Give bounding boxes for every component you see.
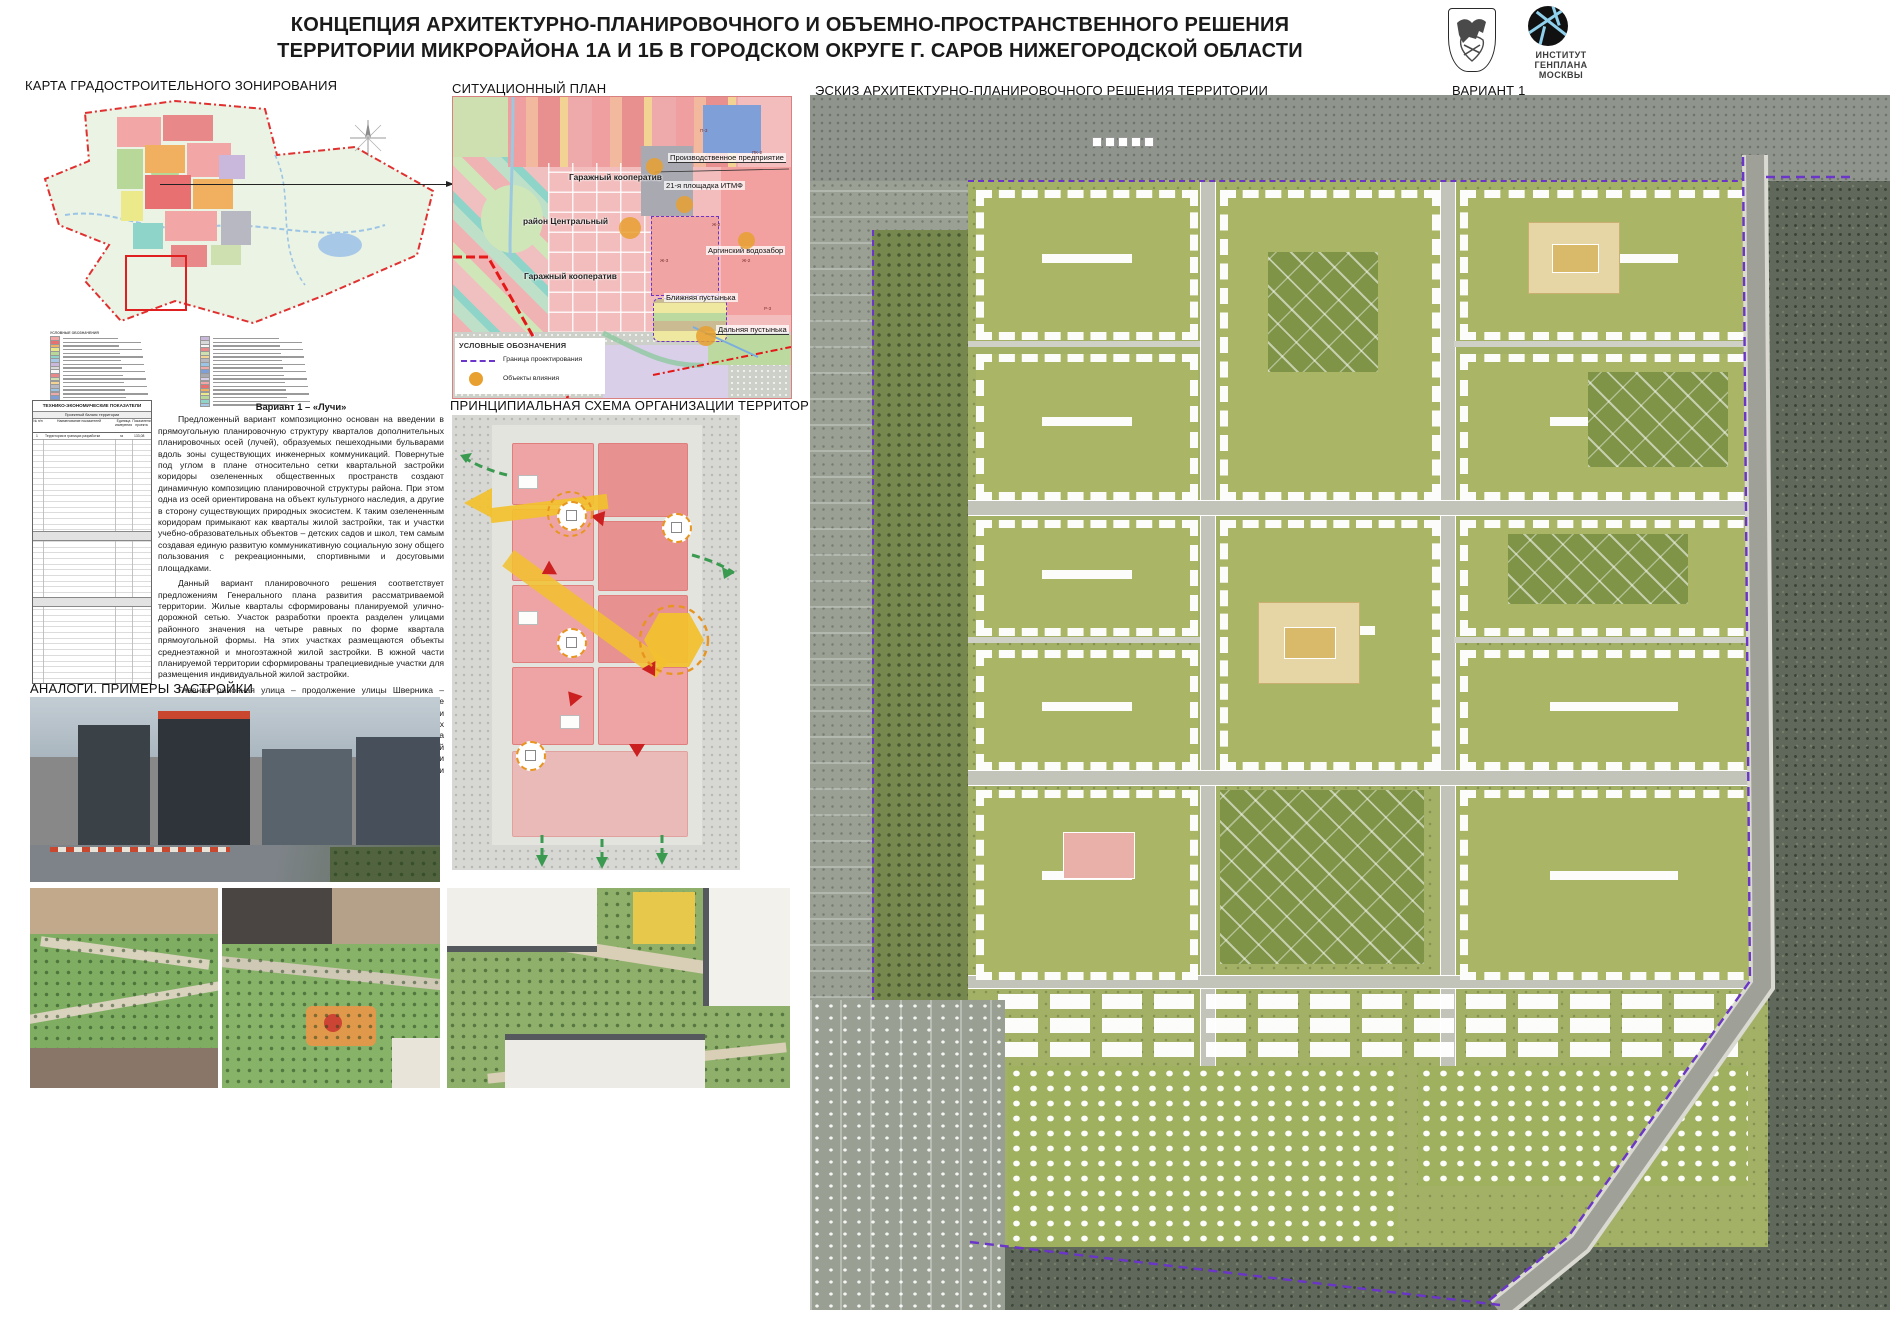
zoning-legend-row bbox=[50, 374, 188, 377]
zoning-legend-row bbox=[200, 389, 338, 392]
photo-tower bbox=[78, 725, 150, 855]
legend-text-bar bbox=[63, 345, 119, 346]
zoning-legend-row bbox=[50, 396, 188, 399]
zoning-legend-row bbox=[200, 348, 338, 351]
zone-code: П-3 bbox=[700, 128, 707, 133]
legend-text-bar bbox=[213, 345, 280, 346]
zoning-legend-row bbox=[50, 385, 188, 388]
tep-table: ТЕХНИКО-ЭКОНОМИЧЕСКИЕ ПОКАЗАТЕЛИ Проектн… bbox=[32, 400, 152, 684]
photo-midrise bbox=[356, 737, 440, 847]
zone-code: Ж-2 bbox=[712, 222, 720, 227]
zoning-legend-row bbox=[50, 378, 188, 381]
label-garage-coop-north: Гаражный кооператив bbox=[569, 172, 662, 182]
legend-text-bar bbox=[213, 338, 279, 339]
zoning-legend-row bbox=[50, 363, 188, 366]
zoning-legend-row bbox=[50, 389, 188, 392]
legend-text-bar bbox=[63, 375, 123, 376]
tep-table-section-band bbox=[33, 597, 151, 607]
photo-midrise bbox=[262, 749, 352, 845]
variant-description-heading: Вариант 1 – «Лучи» bbox=[158, 401, 444, 412]
tep-col-value: Показатели проекта bbox=[132, 420, 151, 428]
zoning-legend-row bbox=[50, 359, 188, 362]
analog-photo-aerial-towers bbox=[30, 697, 440, 882]
legend-text-bar bbox=[63, 397, 126, 398]
photo-building-yellow bbox=[633, 892, 695, 944]
legend-text-bar bbox=[63, 349, 142, 350]
zoning-legend-row bbox=[200, 359, 338, 362]
coat-engraving bbox=[1449, 9, 1495, 71]
variant-paragraph-1: Предложенный вариант композиционно основ… bbox=[158, 414, 444, 574]
photo-building bbox=[30, 888, 218, 934]
legend-text-bar bbox=[63, 378, 146, 379]
zone-code: Р-3 bbox=[764, 306, 771, 311]
analog-photo-courtyard-green bbox=[30, 888, 218, 1088]
legend-text-bar bbox=[213, 397, 287, 398]
legend-text-bar bbox=[63, 360, 121, 361]
zoning-legend-column bbox=[200, 337, 338, 407]
zoning-legend-title: УСЛОВНЫЕ ОБОЗНАЧЕНИЯ bbox=[50, 331, 340, 335]
section-header-schema: ПРИНЦИПИАЛЬНАЯ СХЕМА ОРГАНИЗАЦИИ ТЕРРИТО… bbox=[450, 398, 828, 413]
title-line-1: КОНЦЕПЦИЯ АРХИТЕКТУРНО-ПЛАНИРОВОЧНОГО И … bbox=[120, 12, 1460, 38]
callout-industrial-enterprise: Производственное предприятие bbox=[668, 153, 786, 163]
presentation-board: КОНЦЕПЦИЯ АРХИТЕКТУРНО-ПЛАНИРОВОЧНОГО И … bbox=[0, 0, 1900, 1342]
logo-text-line: МОСКВЫ bbox=[1506, 70, 1616, 80]
zoning-legend-row bbox=[50, 370, 188, 373]
tep-cell-name: Территория в границах разработки bbox=[45, 434, 100, 438]
zoning-legend-row bbox=[200, 367, 338, 370]
callout-far-hermitage: Дальняя пустынька bbox=[716, 325, 789, 335]
map-to-plan-arrow bbox=[160, 184, 452, 185]
zoning-legend-row bbox=[200, 337, 338, 340]
zoning-legend-row bbox=[50, 344, 188, 347]
tep-table-body-rows bbox=[33, 439, 151, 683]
legend-title: УСЛОВНЫЕ ОБОЗНАЧЕНИЯ bbox=[459, 341, 566, 350]
genplan-institute-logo: ИНСТИТУТ ГЕНПЛАНА МОСКВЫ bbox=[1506, 4, 1616, 82]
photo-trees bbox=[330, 847, 440, 882]
legend-text-bar bbox=[63, 371, 145, 372]
legend-text-bar bbox=[213, 353, 281, 354]
photo-building bbox=[392, 1038, 440, 1088]
analog-photo-courtyard-playground bbox=[222, 888, 440, 1088]
zone-code: Ж-3 bbox=[660, 258, 668, 263]
legend-text-bar bbox=[63, 386, 147, 387]
section-header-situation-plan: СИТУАЦИОННЫЙ ПЛАН bbox=[452, 81, 606, 96]
schema-arrows bbox=[452, 415, 740, 870]
tep-cell-num: 1 bbox=[36, 434, 38, 438]
zoning-legend-row bbox=[50, 352, 188, 355]
tep-col-unit: Единица измерения bbox=[115, 420, 132, 428]
zoning-legend-row bbox=[50, 348, 188, 351]
legend-text-bar bbox=[213, 364, 305, 365]
analog-photo-aerial-courtyard bbox=[447, 888, 790, 1088]
logo-text-line: ГЕНПЛАНА bbox=[1506, 60, 1616, 70]
variant-paragraph-2: Данный вариант планировочного решения со… bbox=[158, 578, 444, 681]
influence-object-marker bbox=[619, 217, 641, 239]
legend-text-bar bbox=[213, 393, 309, 394]
tep-table-section-band bbox=[33, 531, 151, 541]
logo-text-line: ИНСТИТУТ bbox=[1506, 50, 1616, 60]
project-area-highlight bbox=[125, 255, 187, 311]
zoning-legend-row bbox=[200, 385, 338, 388]
influence-object-marker bbox=[676, 196, 693, 213]
legend-text-bar bbox=[63, 353, 120, 354]
zoning-legend-row bbox=[200, 381, 338, 384]
zoning-legend-row bbox=[50, 367, 188, 370]
legend-item-influence: Объекты влияния bbox=[503, 375, 559, 382]
photo-red-accent bbox=[158, 711, 250, 719]
photo-building bbox=[332, 888, 440, 944]
genplan-logo-text: ИНСТИТУТ ГЕНПЛАНА МОСКВЫ bbox=[1506, 50, 1616, 80]
photo-building bbox=[30, 1048, 218, 1088]
page-title: КОНЦЕПЦИЯ АРХИТЕКТУРНО-ПЛАНИРОВОЧНОГО И … bbox=[120, 12, 1460, 64]
legend-text-bar bbox=[213, 356, 304, 357]
legend-text-bar bbox=[63, 364, 144, 365]
photo-trees bbox=[30, 934, 218, 1052]
legend-text-bar bbox=[213, 378, 307, 379]
logos-block: ИНСТИТУТ ГЕНПЛАНА МОСКВЫ bbox=[1448, 4, 1618, 82]
influence-object-marker bbox=[696, 326, 716, 346]
influence-circle-icon bbox=[469, 372, 483, 386]
photo-building bbox=[222, 888, 332, 950]
master-plan-sketch bbox=[810, 95, 1890, 1310]
legend-item-boundary: Граница проектирования bbox=[503, 356, 582, 363]
legend-text-bar bbox=[213, 375, 284, 376]
tep-cell-value: 133,08 bbox=[134, 434, 144, 438]
tep-table-header-row: № п/п Наименование показателей Единица и… bbox=[33, 418, 151, 433]
territory-organization-schema bbox=[452, 415, 740, 870]
moscow-coat-of-arms-icon bbox=[1448, 8, 1496, 72]
legend-text-bar bbox=[63, 367, 122, 368]
photo-building bbox=[447, 888, 597, 952]
zone-code: ПК-2 bbox=[752, 150, 762, 155]
tep-col-name: Наименование показателей bbox=[44, 420, 114, 424]
zoning-legend-row bbox=[50, 341, 188, 344]
callout-near-hermitage: Ближняя пустынька bbox=[664, 293, 738, 302]
zoning-legend-row bbox=[200, 374, 338, 377]
zoning-legend-row bbox=[200, 378, 338, 381]
zoning-legend-row bbox=[200, 344, 338, 347]
tep-col-num: № п/п bbox=[33, 420, 43, 424]
legend-text-bar bbox=[63, 382, 124, 383]
zoning-legend-row bbox=[50, 337, 188, 340]
label-garage-coop-south: Гаражный кооператив bbox=[524, 271, 617, 281]
photo-fence bbox=[50, 847, 230, 852]
legend-text-bar bbox=[213, 367, 283, 368]
legend-text-bar bbox=[63, 338, 118, 339]
legend-text-bar bbox=[63, 342, 141, 343]
legend-text-bar bbox=[63, 356, 143, 357]
legend-text-bar bbox=[213, 386, 308, 387]
zoning-map-legend: УСЛОВНЫЕ ОБОЗНАЧЕНИЯ bbox=[50, 331, 340, 393]
tep-table-title: ТЕХНИКО-ЭКОНОМИЧЕСКИЕ ПОКАЗАТЕЛИ bbox=[33, 403, 151, 408]
logo-stroke bbox=[1537, 26, 1546, 46]
title-line-2: ТЕРРИТОРИИ МИКРОРАЙОНА 1А И 1Б В ГОРОДСК… bbox=[120, 38, 1460, 64]
influence-object-marker bbox=[646, 158, 663, 175]
legend-text-bar bbox=[213, 371, 306, 372]
zoning-legend-row bbox=[200, 341, 338, 344]
legend-text-bar bbox=[213, 360, 282, 361]
zoning-legend-row bbox=[200, 352, 338, 355]
zoning-legend-row bbox=[200, 396, 338, 399]
photo-tower bbox=[158, 711, 250, 861]
zoning-legend-row bbox=[200, 355, 338, 358]
zoning-legend-row bbox=[50, 392, 188, 395]
compass-icon bbox=[348, 118, 388, 158]
situation-plan-legend: УСЛОВНЫЕ ОБОЗНАЧЕНИЯ Граница проектирова… bbox=[455, 338, 605, 394]
legend-text-bar bbox=[213, 389, 286, 390]
boundary-dash-icon bbox=[461, 360, 495, 362]
photo-building bbox=[505, 1034, 705, 1088]
photo-building bbox=[703, 888, 790, 1006]
influence-object-marker bbox=[738, 232, 755, 249]
zoning-legend-row bbox=[50, 381, 188, 384]
legend-text-bar bbox=[63, 389, 125, 390]
legend-text-bar bbox=[213, 349, 303, 350]
zoning-legend-row bbox=[200, 370, 338, 373]
zoning-legend-row bbox=[200, 392, 338, 395]
legend-text-bar bbox=[213, 382, 285, 383]
main-road-and-boundary bbox=[810, 95, 1890, 1310]
zone-code: Ж-2 bbox=[742, 258, 750, 263]
zoning-legend-row bbox=[50, 355, 188, 358]
genplan-logo-icon bbox=[1528, 6, 1568, 46]
tep-cell-unit: га bbox=[120, 434, 123, 438]
legend-text-bar bbox=[63, 393, 148, 394]
legend-text-bar bbox=[213, 342, 302, 343]
zoning-legend-row bbox=[200, 363, 338, 366]
zoning-legend-column bbox=[50, 337, 188, 407]
section-header-zoning-map: КАРТА ГРАДОСТРОИТЕЛЬНОГО ЗОНИРОВАНИЯ bbox=[25, 78, 337, 93]
label-district-central: район Центральный bbox=[523, 216, 608, 226]
callout-itmf-site: 21-я площадка ИТМФ bbox=[664, 181, 745, 190]
